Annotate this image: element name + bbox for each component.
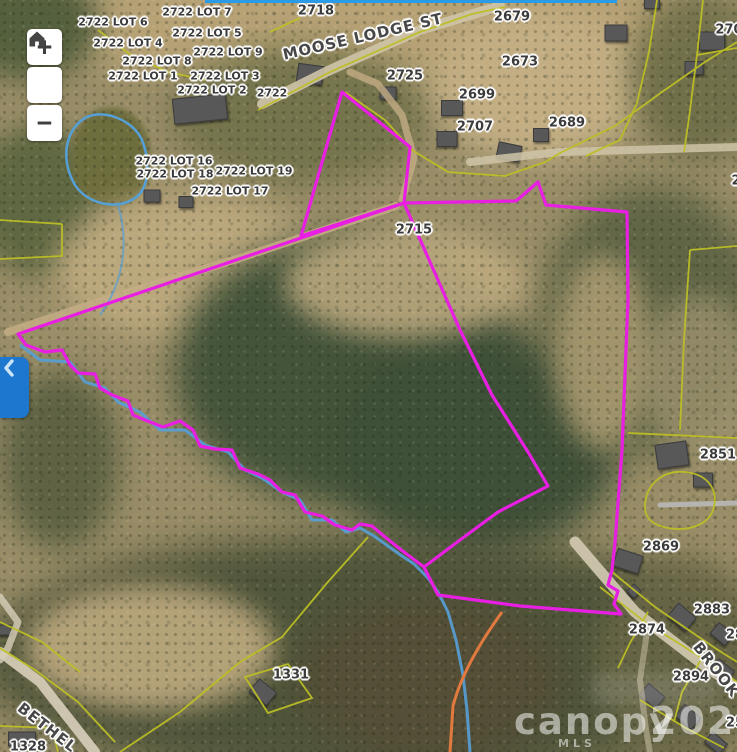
parcel-line: [562, 42, 737, 152]
parcel-label: 2722 LOT 2: [177, 85, 246, 96]
creek-line: [20, 345, 470, 752]
parcel-label: 2679: [494, 11, 530, 24]
chevron-left-icon: [0, 357, 18, 379]
selected-parcel-north-lobe: [301, 92, 410, 236]
road-casing-group: [450, 612, 502, 752]
parcel-label: 1328: [10, 741, 46, 752]
parcel-label: 2851: [700, 449, 736, 462]
parcel-label: 2722 LOT 8: [122, 56, 191, 67]
parcel-label: 2689: [549, 117, 585, 130]
parcel-label: 28: [726, 629, 737, 642]
driveway-2851: [660, 503, 737, 505]
parcel-line: [345, 92, 562, 176]
parcel-label: 2722 LOT 9: [193, 47, 262, 58]
parcel-label: 2725: [387, 70, 423, 83]
parcel-label: 2722 LOT 3: [190, 71, 259, 82]
parcel-label: 2722 LOT 7: [162, 7, 231, 18]
parcel-label: 2722 LOT 17: [191, 186, 268, 197]
home-button[interactable]: [27, 67, 62, 103]
road-top-right: [470, 147, 737, 162]
parcel-label: 2722 LOT 6: [78, 17, 147, 28]
parcel-label: 2722 LOT 18: [136, 169, 213, 180]
map-canvas[interactable]: canopy MLS 2025 2722 LOT 727182722 LOT 6…: [0, 0, 737, 752]
parcel-label: 2874: [629, 624, 665, 637]
parcel-label: 2722: [257, 88, 288, 99]
parcel-line: [0, 220, 62, 259]
parcel-label: 25: [726, 717, 737, 730]
parcel-label: 2722 LOT 4: [93, 38, 162, 49]
parcel-line: [120, 537, 368, 752]
parcel-label: 2722 LOT 16: [135, 156, 212, 167]
parcel-line: [628, 246, 737, 438]
zoom-out-button[interactable]: −: [27, 105, 62, 141]
parcel-label: 2722 LOT 1: [108, 71, 177, 82]
parcel-label: 1331: [273, 669, 309, 682]
minus-icon: −: [37, 110, 53, 137]
trail-bottom-right: [640, 625, 650, 752]
home-icon: [27, 29, 47, 49]
top-edge-strip: [205, 0, 617, 3]
parcel-label: 2715: [396, 224, 432, 237]
parcel-label: 2883: [694, 604, 730, 617]
dirt-road-north: [350, 72, 414, 200]
selected-parcel-boundary: [18, 182, 628, 614]
parcel-label: 2869: [643, 541, 679, 554]
parcel-label: 2722 LOT 19: [215, 166, 292, 177]
orange-road-line: [450, 612, 502, 752]
parcel-label: 2718: [298, 5, 334, 18]
parcel-line: [586, 0, 657, 156]
map-controls: + −: [27, 29, 62, 143]
water-group: [20, 114, 470, 752]
parcel-label: 2699: [459, 89, 495, 102]
parcel-label: 2673: [502, 56, 538, 69]
parcel-label: 2707: [457, 121, 493, 134]
parcel-label: 2722 LOT 5: [172, 28, 241, 39]
parcel-label: 2894: [673, 671, 709, 684]
parcel-label: 2: [731, 175, 737, 188]
map-linework: [0, 0, 737, 752]
selected-parcel-divider: [404, 203, 548, 567]
parcel-line: [645, 472, 715, 529]
panel-collapse-button[interactable]: [0, 357, 29, 418]
parcel-label: 270: [715, 24, 737, 37]
selected-parcel-group: [18, 92, 628, 614]
